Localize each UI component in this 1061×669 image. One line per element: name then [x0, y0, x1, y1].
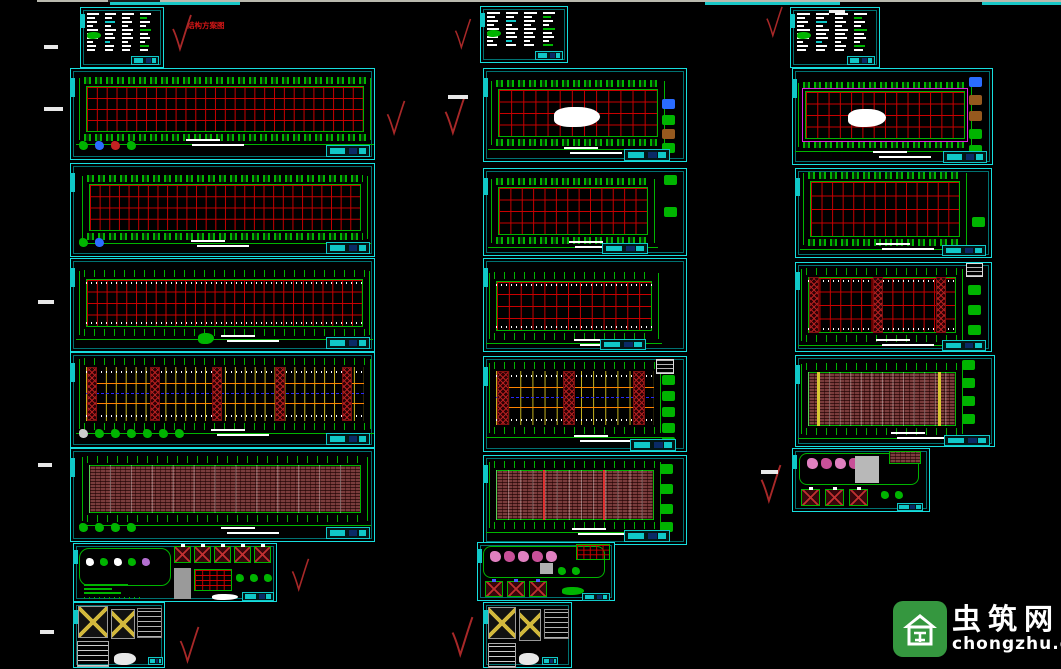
text-line: [816, 33, 826, 35]
title-cell: [947, 154, 963, 160]
text-line: [854, 33, 864, 35]
title-cell: [349, 340, 357, 346]
white-dash-mark: [40, 630, 54, 634]
line: [86, 403, 364, 404]
title-cell: [544, 659, 549, 663]
text-line: [524, 12, 537, 14]
text-line: [122, 21, 132, 23]
sheet-edge-tab: [480, 13, 485, 27]
text-line: [816, 13, 829, 15]
text-line: [524, 32, 533, 34]
sheet-edge-tab: [795, 178, 800, 196]
text-line: [487, 24, 494, 26]
title-cell: [978, 438, 986, 444]
text-line: [835, 25, 842, 27]
detail-table: [77, 641, 109, 667]
text-line: [87, 29, 98, 31]
margin-detail-symbol: [662, 407, 675, 417]
red-grid: [810, 181, 960, 237]
title-cell: [946, 343, 962, 349]
title-block: [630, 439, 676, 451]
text-line: [87, 45, 96, 47]
legend-symbol: [504, 551, 515, 562]
title-block: [624, 149, 670, 161]
cross-bracing-band: [497, 371, 509, 425]
text-line: [140, 17, 148, 19]
legend-symbol: [95, 523, 104, 532]
title-block: [624, 530, 670, 542]
title-cell: [359, 245, 367, 251]
text-line: [105, 25, 111, 27]
title-cell: [664, 442, 672, 448]
legend-symbol: [490, 551, 501, 562]
drawing-sheet-m7-details[interactable]: [477, 542, 615, 601]
legend-symbol: [159, 429, 168, 438]
dot-row: [86, 282, 363, 284]
legend-symbol: [111, 141, 120, 150]
detail-blob: [562, 587, 584, 595]
margin-detail-symbol: [969, 129, 982, 139]
white-dash-mark: [448, 95, 468, 99]
note-text-line: [578, 533, 630, 535]
x-brace-panel: [849, 489, 868, 506]
purlin-hatch: [889, 451, 921, 464]
review-checkmark[interactable]: [176, 626, 203, 664]
x-brace-panel: [488, 607, 516, 639]
margin-detail-symbol: [962, 414, 975, 424]
watermark-site-name: 虫筑网: [952, 605, 1061, 634]
detail-table: [488, 643, 516, 668]
drawing-sheet-l6-purlins[interactable]: [70, 448, 375, 542]
text-line: [140, 13, 152, 15]
text-line: [506, 28, 518, 30]
sheet-edge-tab: [792, 79, 797, 98]
text-line: [84, 588, 112, 590]
drawing-sheet-m8-brace-details[interactable]: [483, 602, 572, 668]
sheet-edge-tab: [70, 268, 75, 287]
drawing-sheet-r5-purlins[interactable]: [795, 355, 995, 447]
line: [489, 363, 490, 433]
title-cell: [975, 343, 983, 349]
margin-detail-symbol: [969, 111, 982, 121]
note-text-line: [873, 151, 907, 153]
drawing-sheet-l7-details[interactable]: [73, 543, 277, 602]
text-line: [105, 21, 115, 23]
note-text-line: [221, 335, 255, 337]
cross-bracing-band: [150, 367, 160, 421]
text-line: [835, 33, 845, 35]
sheet-edge-tab: [790, 14, 795, 28]
line: [489, 462, 490, 528]
text-line: [105, 17, 113, 19]
title-cell: [658, 152, 666, 158]
review-checkmark[interactable]: [763, 6, 786, 38]
note-text-line: [897, 437, 949, 439]
note-text-line: [574, 435, 608, 437]
panel-tick: [181, 544, 185, 547]
title-block: [535, 51, 563, 60]
text-line: [140, 37, 151, 39]
note-text-line: [186, 139, 220, 141]
title-cell: [968, 438, 977, 444]
title-block: [326, 337, 370, 349]
text-line: [105, 33, 114, 35]
sheet-edge-tab: [483, 178, 488, 196]
note-text-line: [191, 240, 225, 242]
cross-bracing-band: [212, 367, 222, 421]
text-line: [524, 36, 535, 38]
drawing-sheet-l2-plan[interactable]: [70, 68, 375, 160]
text-line: [487, 20, 498, 22]
title-cell: [266, 594, 271, 598]
sheet-edge-tab: [70, 173, 75, 192]
text-line: [506, 36, 517, 38]
sheet-edge-tab: [483, 465, 488, 483]
drawing-sheet-l4-plan[interactable]: [70, 258, 375, 352]
top-edge-sheet-segment: [982, 2, 1061, 5]
text-line: [835, 21, 846, 23]
text-line: [524, 40, 530, 42]
detail-blob: [114, 653, 136, 665]
text-line: [87, 13, 99, 15]
detail-blob: [212, 594, 238, 600]
title-cell: [259, 594, 265, 598]
title-cell: [597, 595, 602, 599]
sheet-edge-tab: [483, 268, 488, 287]
top-edge-sheet-segment: [705, 2, 840, 5]
note-text-line: [221, 527, 255, 529]
x-brace-panel: [174, 546, 191, 563]
line: [798, 83, 799, 147]
title-cell: [628, 152, 645, 158]
text-line: [797, 45, 808, 47]
text-line: [543, 16, 551, 18]
cross-bracing-band: [873, 277, 883, 333]
note-text-line: [580, 440, 632, 442]
title-block: [897, 503, 923, 511]
column-symbol-band: [84, 358, 366, 365]
x-brace-panel: [78, 606, 108, 638]
white-dash-mark: [38, 300, 54, 304]
review-checkmark[interactable]: [449, 616, 476, 658]
title-cell: [330, 530, 346, 536]
legend-symbol: [95, 141, 104, 150]
detail-blob: [87, 32, 101, 39]
text-line: [122, 17, 130, 19]
review-checkmark[interactable]: [440, 96, 470, 136]
text-line: [854, 21, 865, 23]
title-cell: [965, 343, 973, 349]
text-line: [543, 12, 556, 14]
legend-symbol: [111, 429, 120, 438]
title-cell: [862, 58, 867, 62]
text-line: [87, 17, 95, 19]
text-line: [835, 37, 847, 39]
line: [654, 179, 655, 243]
column-symbol-band: [87, 515, 363, 522]
purlin-strip: [938, 372, 941, 426]
title-block: [600, 339, 646, 350]
note-text-line: [211, 429, 245, 431]
text-line: [140, 25, 146, 27]
text-line: [506, 16, 514, 18]
title-cell: [946, 248, 962, 254]
x-brace-panel: [234, 546, 251, 563]
title-cell: [330, 148, 346, 154]
dot-row: [84, 597, 142, 599]
text-line: [84, 584, 128, 586]
text-line: [816, 25, 823, 27]
text-line: [797, 21, 808, 23]
sheet-edge-tab: [70, 78, 75, 96]
review-checkmark[interactable]: [289, 558, 312, 592]
text-line: [122, 37, 133, 39]
panel-tick: [261, 544, 265, 547]
detail-rect: [174, 568, 191, 599]
title-block: [326, 145, 370, 157]
title-block: [242, 592, 274, 601]
title-block: [582, 593, 610, 601]
margin-detail-symbol: [969, 77, 982, 87]
title-cell: [636, 246, 644, 252]
red-grid: [576, 544, 610, 560]
text-line: [524, 20, 535, 22]
column-symbol-band: [84, 77, 366, 84]
text-line: [105, 45, 114, 47]
purlin-strip: [543, 470, 545, 520]
text-line: [854, 25, 861, 27]
text-line: [835, 49, 844, 51]
title-cell: [330, 436, 346, 442]
legend-symbol: [881, 491, 889, 499]
drawing-sheet-r4-plan[interactable]: [795, 262, 992, 352]
text-line: [524, 24, 531, 26]
watermark-house-logo-icon: [893, 601, 947, 657]
text-line: [105, 37, 116, 39]
cross-bracing-band: [275, 367, 285, 421]
dot-row: [496, 284, 652, 286]
panel-tick: [536, 579, 540, 582]
drawing-sheet-m4-plan[interactable]: [483, 258, 687, 352]
drawing-sheet-r2-plan[interactable]: [792, 68, 993, 165]
drawing-sheet-l3-plan[interactable]: [70, 163, 375, 257]
dot-row: [496, 326, 652, 328]
legend-symbol: [128, 558, 136, 566]
drawing-sheet-m6-purlins[interactable]: [483, 455, 687, 545]
text-line: [543, 20, 554, 22]
text-line: [487, 16, 495, 18]
legend-symbol: [250, 574, 258, 582]
legend-symbol: [142, 558, 150, 566]
title-cell: [330, 340, 346, 346]
panel-tick: [241, 544, 245, 547]
column-symbol-band: [494, 461, 656, 468]
text-line: [105, 13, 117, 15]
legend-symbol: [236, 574, 244, 582]
text-line: [816, 49, 825, 51]
column-symbol-band: [494, 427, 656, 434]
column-symbol-band: [494, 362, 656, 369]
note-text-line: [572, 528, 606, 530]
title-block: [942, 245, 986, 256]
margin-detail-symbol: [968, 305, 981, 315]
legend-symbol: [95, 429, 104, 438]
text-line: [543, 36, 554, 38]
title-cell: [359, 148, 367, 154]
column-symbol-band: [496, 80, 660, 87]
x-brace-panel: [529, 581, 547, 597]
column-symbol-band: [806, 428, 958, 435]
review-checkmark[interactable]: [383, 100, 409, 136]
review-checkmark[interactable]: [453, 18, 473, 50]
text-line: [816, 37, 828, 39]
text-line: [854, 49, 863, 51]
sheet-edge-tab: [792, 455, 797, 469]
line: [367, 457, 368, 521]
purlin-column-lines: [89, 465, 361, 513]
x-brace-panel: [507, 581, 525, 597]
drawing-sheet-m3-plan[interactable]: [483, 168, 687, 256]
sheet-edge-tab: [483, 78, 488, 97]
title-cell: [634, 342, 642, 348]
sheet-edge-tab: [477, 549, 482, 563]
review-checkmark[interactable]: [170, 14, 194, 52]
note-text-line: [570, 152, 622, 154]
line: [369, 271, 370, 335]
line: [491, 179, 492, 243]
margin-detail-symbol: [962, 378, 975, 388]
panel-tick: [857, 487, 861, 490]
title-cell: [330, 245, 346, 251]
title-cell: [556, 53, 561, 57]
text-line: [543, 28, 555, 30]
text-line: [854, 41, 860, 43]
title-cell: [349, 436, 357, 442]
title-cell: [899, 505, 908, 509]
drawing-sheet-m1-notes[interactable]: [480, 6, 568, 63]
text-line: [140, 45, 149, 47]
legend-symbol: [264, 574, 272, 582]
white-dash-mark: [38, 463, 52, 467]
margin-detail-symbol: [662, 129, 675, 139]
drawing-sheet-l5-bracing[interactable]: [70, 352, 375, 448]
legend-symbol: [79, 238, 88, 247]
bracing-bays: [496, 371, 654, 425]
margin-detail-symbol: [664, 175, 677, 185]
cross-bracing-band: [87, 367, 97, 421]
legend-symbol: [79, 429, 88, 438]
note-text-line: [217, 434, 269, 436]
title-block: [942, 340, 986, 351]
text-line: [797, 25, 804, 27]
text-line: [506, 24, 513, 26]
drawing-sheet-r6-details[interactable]: [792, 448, 930, 512]
title-cell: [349, 245, 357, 251]
drawing-sheet-m2-plan[interactable]: [483, 68, 687, 162]
drawing-sheet-m5-bracing[interactable]: [483, 356, 687, 452]
legend-symbol: [100, 558, 108, 566]
title-cell: [159, 659, 161, 663]
drawing-sheet-r3-plan[interactable]: [795, 168, 992, 258]
text-line: [797, 41, 803, 43]
detail-rect: [540, 563, 553, 574]
x-brace-panel: [254, 546, 271, 563]
margin-detail-symbol: [962, 396, 975, 406]
title-block: [131, 56, 159, 65]
red-grid: [86, 279, 363, 327]
text-line: [140, 33, 149, 35]
bracing-bays: [86, 367, 364, 421]
text-line: [122, 45, 131, 47]
margin-detail-symbol: [662, 115, 675, 125]
text-line: [105, 41, 111, 43]
margin-detail-symbol: [962, 360, 975, 370]
margin-detail-symbol: [972, 217, 985, 227]
legend-symbol: [558, 567, 566, 575]
note-text-line: [876, 339, 910, 341]
drawing-sheet-l1-notes[interactable]: [80, 7, 164, 68]
text-line: [122, 29, 133, 31]
text-line: [854, 13, 867, 15]
detail-rect: [79, 548, 171, 586]
drawing-sheet-r1-notes[interactable]: [790, 7, 880, 68]
x-brace-panel: [801, 489, 820, 506]
line: [801, 269, 802, 341]
text-line: [797, 29, 810, 31]
text-line: [816, 21, 827, 23]
watermark: 虫筑网 chongzhu.cn: [893, 601, 1061, 657]
line: [966, 173, 967, 245]
purlin-column-lines: [496, 470, 654, 520]
detail-box: [656, 359, 674, 374]
column-symbol-band: [87, 456, 363, 463]
note-text-line: [227, 340, 279, 342]
margin-detail-symbol: [660, 504, 673, 514]
margin-detail-symbol: [660, 484, 673, 494]
panel-tick: [201, 544, 205, 547]
text-line: [487, 44, 497, 46]
margin-detail-symbol: [969, 95, 982, 105]
drawing-sheet-l8-brace-details[interactable]: [73, 602, 165, 668]
title-cell: [975, 248, 983, 254]
detail-blob: [487, 30, 501, 37]
note-text-line: [891, 432, 925, 434]
margin-detail-symbol: [662, 99, 675, 109]
note-text-line: [876, 243, 910, 245]
line: [79, 359, 80, 429]
column-symbol-band: [494, 272, 654, 279]
column-symbol-band: [803, 141, 967, 148]
watermark-domain: chongzhu.cn: [952, 636, 1061, 653]
title-cell: [868, 58, 873, 62]
line: [82, 176, 83, 239]
title-cell: [146, 58, 151, 62]
red-grid: [86, 86, 364, 132]
text-line: [87, 25, 93, 27]
title-block: [542, 657, 558, 665]
cross-bracing-band: [563, 371, 575, 425]
margin-detail-symbol: [662, 423, 675, 433]
title-cell: [359, 436, 367, 442]
text-line: [854, 37, 866, 39]
title-cell: [606, 246, 623, 252]
title-block: [943, 151, 987, 163]
dot-row: [86, 322, 363, 324]
legend-symbol: [175, 429, 184, 438]
column-symbol-band: [808, 172, 962, 179]
white-dash-mark: [44, 45, 58, 49]
text-line: [835, 17, 843, 19]
